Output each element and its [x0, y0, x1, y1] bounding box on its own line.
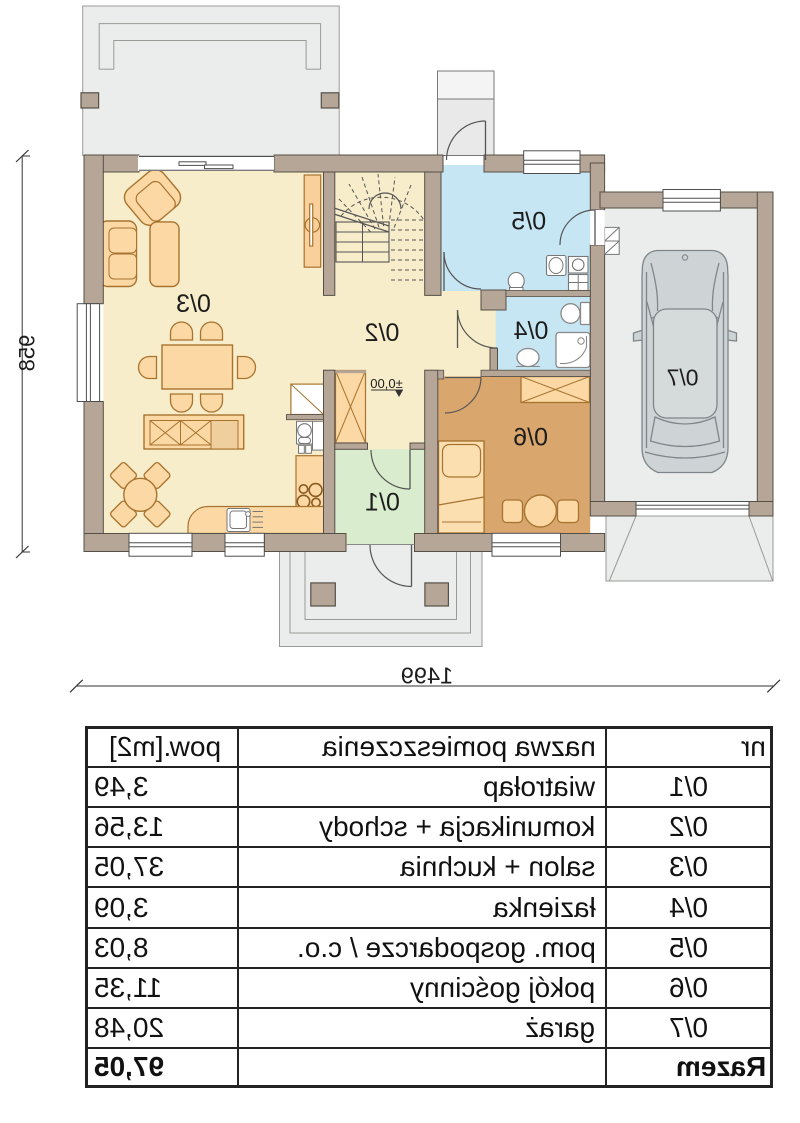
- svg-text:0/3: 0/3: [176, 290, 211, 318]
- svg-text:0/4: 0/4: [514, 317, 549, 345]
- svg-text:±0,00: ±0,00: [370, 376, 402, 391]
- svg-text:958: 958: [15, 335, 40, 372]
- svg-text:0/2: 0/2: [365, 319, 400, 347]
- svg-text:0/5: 0/5: [511, 208, 546, 236]
- svg-text:0/6: 0/6: [513, 424, 548, 452]
- svg-text:0/1: 0/1: [365, 489, 400, 517]
- svg-text:1499: 1499: [401, 663, 453, 689]
- svg-text:0/7: 0/7: [667, 365, 699, 391]
